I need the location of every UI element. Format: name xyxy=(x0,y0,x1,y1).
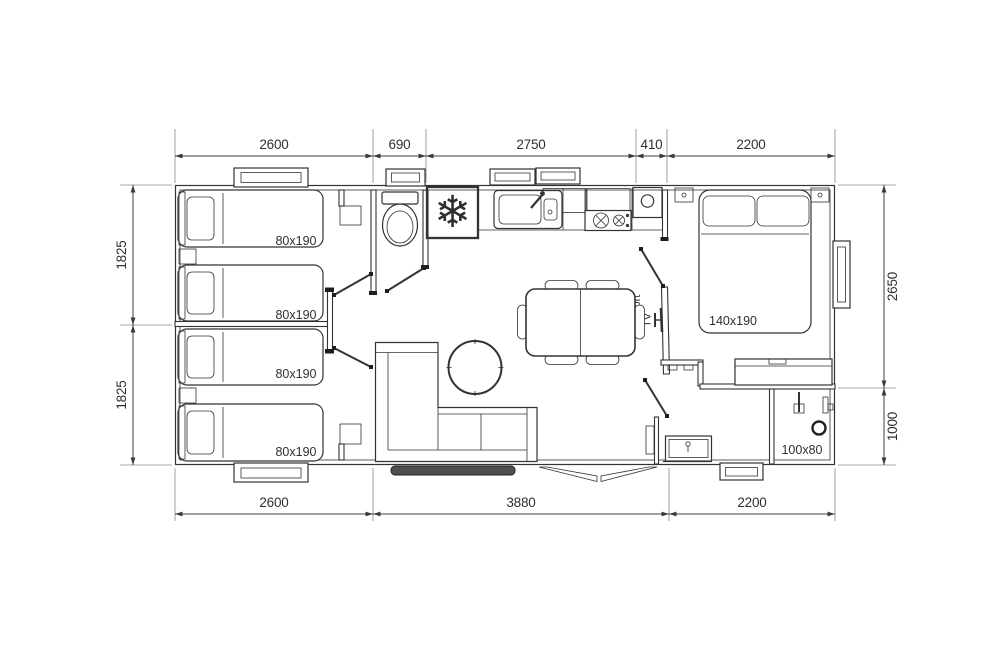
shelf xyxy=(646,426,654,454)
kitchen: ❄ xyxy=(427,187,662,238)
dimension-arrow xyxy=(882,185,887,193)
bathroom: 100x80 xyxy=(646,392,833,462)
dimension-arrow xyxy=(175,154,183,159)
dim-top-3: 2750 xyxy=(516,137,545,152)
dimension-arrow xyxy=(882,388,887,396)
shower-mixer-icon xyxy=(823,397,828,413)
dim-left-1: 1825 xyxy=(114,240,129,269)
dimension-arrow xyxy=(882,381,887,389)
dimension-arrow xyxy=(660,154,668,159)
master-bedroom: 140x190 xyxy=(668,188,832,385)
chair xyxy=(635,305,645,339)
dim-bottom-2: 3880 xyxy=(506,495,535,510)
bay-window-strip xyxy=(391,466,515,475)
dimension-arrow xyxy=(373,512,381,517)
dim-top-5: 2200 xyxy=(736,137,765,152)
dim-top-4: 410 xyxy=(641,137,663,152)
dimension-arrow xyxy=(882,458,887,466)
dim-bottom-3: 2200 xyxy=(737,495,766,510)
dimension-arrow xyxy=(426,154,434,159)
round-table xyxy=(449,341,502,394)
toilet-bowl xyxy=(383,204,418,246)
dimension-arrow xyxy=(629,154,637,159)
bed4-label: 80x190 xyxy=(275,445,316,459)
snowflake-icon: ❄ xyxy=(434,188,471,237)
wc-room xyxy=(382,192,418,246)
dimension-arrow xyxy=(669,512,677,517)
toilet-tank xyxy=(382,192,418,204)
living-dining xyxy=(376,281,645,462)
tv-icon xyxy=(661,308,662,332)
dim-right-1: 2650 xyxy=(885,272,900,301)
shower-label: 100x80 xyxy=(781,443,822,457)
stove xyxy=(585,211,631,231)
water-heater xyxy=(633,188,662,218)
master-bed-label: 140x190 xyxy=(709,314,757,328)
dimension-arrow xyxy=(131,325,136,333)
entrance-door-left xyxy=(539,467,597,482)
entrance-door-right xyxy=(601,467,657,482)
bed1-label: 80x190 xyxy=(275,234,316,248)
dimension-arrow xyxy=(828,154,836,159)
dim-top-2: 690 xyxy=(389,137,411,152)
dimension-arrow xyxy=(636,154,644,159)
dim-top-1: 2600 xyxy=(259,137,288,152)
dimension-arrow xyxy=(131,458,136,466)
dim-left-2: 1825 xyxy=(114,380,129,409)
dimension-arrow xyxy=(828,512,836,517)
dimension-arrow xyxy=(175,512,183,517)
dimension-arrow xyxy=(366,154,374,159)
dimension-arrow xyxy=(366,512,374,517)
dimension-arrow xyxy=(131,318,136,326)
bed3-label: 80x190 xyxy=(275,367,316,381)
floor-plan-svg: 80x190 80x190 80x190 80x190 ❄ xyxy=(0,0,1000,667)
dim-right-2: 1000 xyxy=(885,412,900,441)
dimension-arrow xyxy=(419,154,427,159)
bed2-label: 80x190 xyxy=(275,308,316,322)
dresser xyxy=(735,359,832,385)
dimension-arrow xyxy=(667,154,675,159)
dimension-arrow xyxy=(131,185,136,193)
shower-drain xyxy=(813,422,826,435)
dim-bottom-1: 2600 xyxy=(259,495,288,510)
floor-plan-page: 80x190 80x190 80x190 80x190 ❄ xyxy=(0,0,1000,667)
wall-cabinet xyxy=(587,189,630,213)
dimension-arrow xyxy=(662,512,670,517)
kitchen-sink xyxy=(494,191,562,229)
dimension-arrow xyxy=(373,154,381,159)
